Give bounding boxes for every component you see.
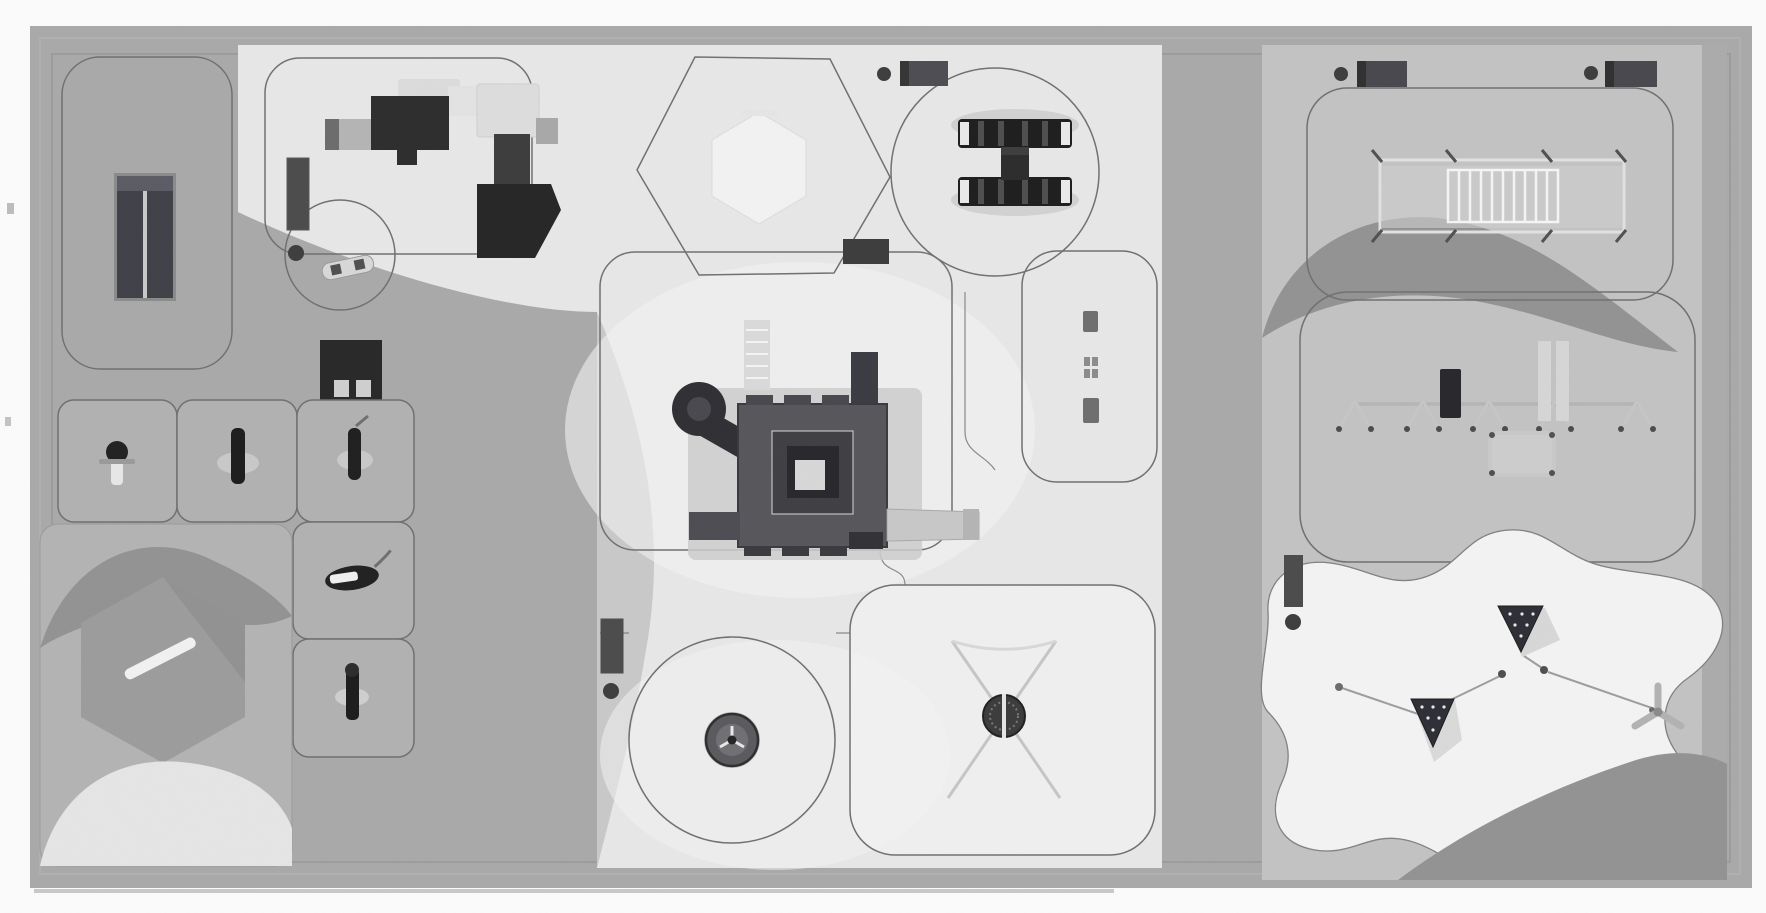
site-plan bbox=[0, 0, 1766, 913]
scan-grain bbox=[0, 0, 1766, 913]
